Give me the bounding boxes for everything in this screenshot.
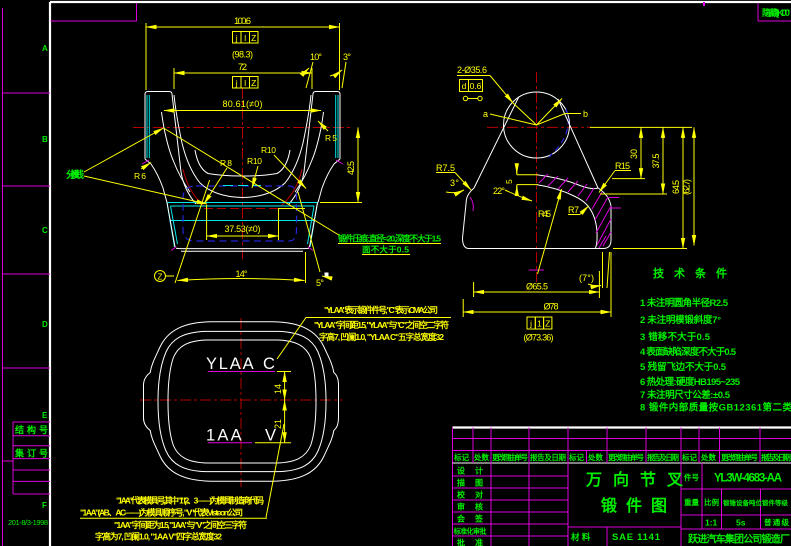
svg-text:Ø65.5: Ø65.5 [526, 282, 548, 292]
svg-text:201-8/3-1998: 201-8/3-1998 [8, 518, 48, 527]
svg-text:5: 5 [504, 179, 514, 184]
svg-text:R10: R10 [261, 145, 276, 155]
svg-text:80.61(≠0): 80.61(≠0) [223, 99, 263, 109]
svg-text:R15: R15 [615, 161, 630, 171]
svg-text:标准化审批: 标准化审批 [453, 527, 487, 536]
svg-text:锻锤设备吨位: 锻锤设备吨位 [723, 498, 763, 507]
svg-text:1AA: 1AA [206, 427, 244, 445]
svg-text:1: 1 [537, 319, 542, 329]
svg-text:l: l [244, 33, 246, 43]
svg-text:30: 30 [629, 149, 639, 159]
svg-text:b: b [583, 109, 588, 119]
svg-text:R45: R45 [538, 209, 551, 219]
svg-text:普通级: 普通级 [764, 517, 790, 527]
svg-text:C: C [263, 355, 275, 373]
svg-text:1 未注明圆角半径R2.5: 1 未注明圆角半径R2.5 [640, 297, 729, 309]
svg-text:Z: Z [158, 273, 163, 282]
svg-text:j: j [235, 78, 238, 88]
svg-text:8 锻件内部质量按GB12361第二类: 8 锻件内部质量按GB12361第二类 [640, 402, 791, 414]
svg-text:锻件等级: 锻件等级 [762, 498, 789, 507]
svg-text:设 计: 设 计 [457, 466, 483, 476]
svg-text:3 错移不大于0.5: 3 错移不大于0.5 [640, 331, 711, 343]
svg-text:材 料: 材 料 [570, 532, 591, 542]
svg-text:7 未注明尺寸公差:±0.5: 7 未注明尺寸公差:±0.5 [640, 389, 731, 401]
svg-text:锻件压痕:直径≈20,深度不大于1.5: 锻件压痕:直径≈20,深度不大于1.5 [338, 234, 441, 244]
svg-text:跃进汽车集团公司锻造厂: 跃进汽车集团公司锻造厂 [688, 533, 790, 546]
svg-text:14°: 14° [236, 269, 248, 279]
svg-text:分模线: 分模线 [66, 169, 84, 181]
svg-text:a: a [483, 109, 488, 119]
svg-text:批 准: 批 准 [457, 538, 483, 546]
svg-text:(Ø73.36): (Ø73.36) [524, 333, 554, 343]
svg-text:标记: 标记 [568, 452, 584, 462]
svg-text:37.5: 37.5 [651, 154, 661, 169]
svg-text:YL3W-4683-AA: YL3W-4683-AA [714, 473, 782, 485]
svg-text:审 核: 审 核 [457, 502, 483, 512]
svg-text:5s: 5s [736, 518, 746, 528]
svg-text:(7°): (7°) [579, 273, 594, 283]
svg-text:l: l [244, 78, 246, 88]
svg-text:会 签: 会 签 [457, 514, 484, 524]
svg-text:件号: 件号 [684, 472, 699, 482]
svg-text:3°: 3° [343, 52, 351, 62]
svg-text:1:1: 1:1 [705, 518, 718, 528]
svg-text:报告及日期: 报告及日期 [761, 452, 791, 462]
svg-text:d: d [462, 81, 467, 91]
svg-text:Z: Z [251, 78, 256, 88]
svg-text:锻 件 图: 锻 件 图 [601, 496, 667, 515]
svg-text:集订号: 集订号 [14, 448, 48, 459]
svg-text:2-Ø35.6: 2-Ø35.6 [457, 65, 487, 75]
svg-text:10°: 10° [310, 52, 322, 62]
svg-text:标记: 标记 [453, 452, 469, 462]
svg-text:21: 21 [273, 419, 283, 429]
svg-text:重量: 重量 [684, 497, 699, 507]
svg-text:37.53(≠0): 37.53(≠0) [225, 224, 261, 234]
svg-text:E: E [42, 411, 48, 420]
svg-text:处数: 处数 [587, 452, 603, 462]
svg-text:隐藏(K0'0': 隐藏(K0'0' [762, 7, 790, 18]
svg-text:万 向 节 叉: 万 向 节 叉 [585, 470, 684, 489]
svg-text:3°: 3° [450, 178, 459, 188]
svg-text:处数: 处数 [700, 452, 716, 462]
svg-text:面不大于0.5: 面不大于0.5 [362, 245, 409, 255]
svg-text:64.5: 64.5 [671, 180, 681, 194]
svg-text:更改理由单号: 更改理由单号 [608, 452, 645, 462]
svg-text:4 表面缺陷深度不大于0.5: 4 表面缺陷深度不大于0.5 [640, 346, 737, 358]
svg-text:F: F [42, 501, 47, 510]
svg-text:14: 14 [273, 384, 283, 394]
svg-text:"YLAA"字间距1.5, "YLAA"与"C"之间空二字符: "YLAA"字间距1.5, "YLAA"与"C"之间空二字符 [314, 320, 449, 330]
svg-text:B: B [42, 135, 48, 144]
svg-text:22°: 22° [493, 186, 505, 196]
svg-text:结构号: 结构号 [15, 424, 48, 435]
svg-text:更改理由单号: 更改理由单号 [721, 452, 759, 462]
svg-text:比例: 比例 [704, 497, 719, 507]
svg-text:5 残留飞边不大于0.5: 5 残留飞边不大于0.5 [640, 361, 727, 373]
svg-text:处数: 处数 [473, 452, 489, 462]
svg-text:Ø78: Ø78 [544, 302, 559, 312]
svg-text:R10: R10 [247, 156, 262, 166]
svg-text:Z: Z [251, 33, 256, 43]
svg-text:Z: Z [545, 319, 550, 329]
svg-text:"1AA"字间距为1.5, "1AA"与"V"之间空三字符: "1AA"字间距为1.5, "1AA"与"V"之间空三字符 [114, 520, 247, 530]
svg-text:R6: R6 [134, 171, 146, 181]
svg-text:R7: R7 [568, 205, 579, 215]
svg-text:校 对: 校 对 [457, 490, 483, 500]
svg-text:描 图: 描 图 [457, 478, 483, 488]
svg-text:42.5: 42.5 [346, 161, 356, 175]
svg-text:6 热处理:硬度HB195~235: 6 热处理:硬度HB195~235 [640, 376, 741, 388]
svg-text:R5: R5 [325, 133, 337, 143]
svg-text:0.6: 0.6 [470, 81, 482, 91]
svg-text:72: 72 [238, 62, 247, 73]
svg-text:SAE 1141: SAE 1141 [612, 532, 661, 543]
svg-text:YLAA: YLAA [206, 355, 255, 373]
svg-text:"YLAA"表示锻件件号, "C"表示CMA公司: "YLAA"表示锻件件号, "C"表示CMA公司 [324, 305, 438, 315]
svg-text:"1AA"(AB、AC——)为模具顺序号, "V"代表Vis: "1AA"(AB、AC——)为模具顺序号, "V"代表Visteon公司 [80, 508, 243, 518]
svg-text:D: D [42, 320, 48, 329]
svg-text:(62.7): (62.7) [682, 179, 692, 195]
svg-text:字高7, 凹阑1.0, "YLAA C"五字总宽度32: 字高7, 凹阑1.0, "YLAA C"五字总宽度32 [319, 332, 444, 342]
svg-text:C: C [42, 226, 48, 235]
svg-text:5°: 5° [316, 278, 324, 288]
svg-text:j: j [235, 33, 238, 43]
svg-text:报告及日期: 报告及日期 [530, 452, 567, 462]
svg-text:标记: 标记 [681, 452, 697, 462]
svg-text:(98.3): (98.3) [232, 50, 253, 60]
svg-text:100.6: 100.6 [234, 16, 251, 27]
svg-text:j: j [529, 319, 532, 329]
svg-text:更改理由单号: 更改理由单号 [492, 452, 529, 462]
svg-text:R7.5: R7.5 [436, 163, 455, 173]
svg-text:"1AA"代表模具号, 其中"1"(2、3——)为模具制造商: "1AA"代表模具号, 其中"1"(2、3——)为模具制造商代码 [116, 496, 264, 506]
svg-text:2 未注明模锻斜度7°: 2 未注明模锻斜度7° [640, 314, 721, 326]
svg-text:字高为7, 凹阑1.0, "1AA V"四字总宽度32: 字高为7, 凹阑1.0, "1AA V"四字总宽度32 [95, 532, 222, 542]
svg-text:A: A [42, 44, 48, 53]
svg-text:报告及日期: 报告及日期 [647, 452, 680, 462]
